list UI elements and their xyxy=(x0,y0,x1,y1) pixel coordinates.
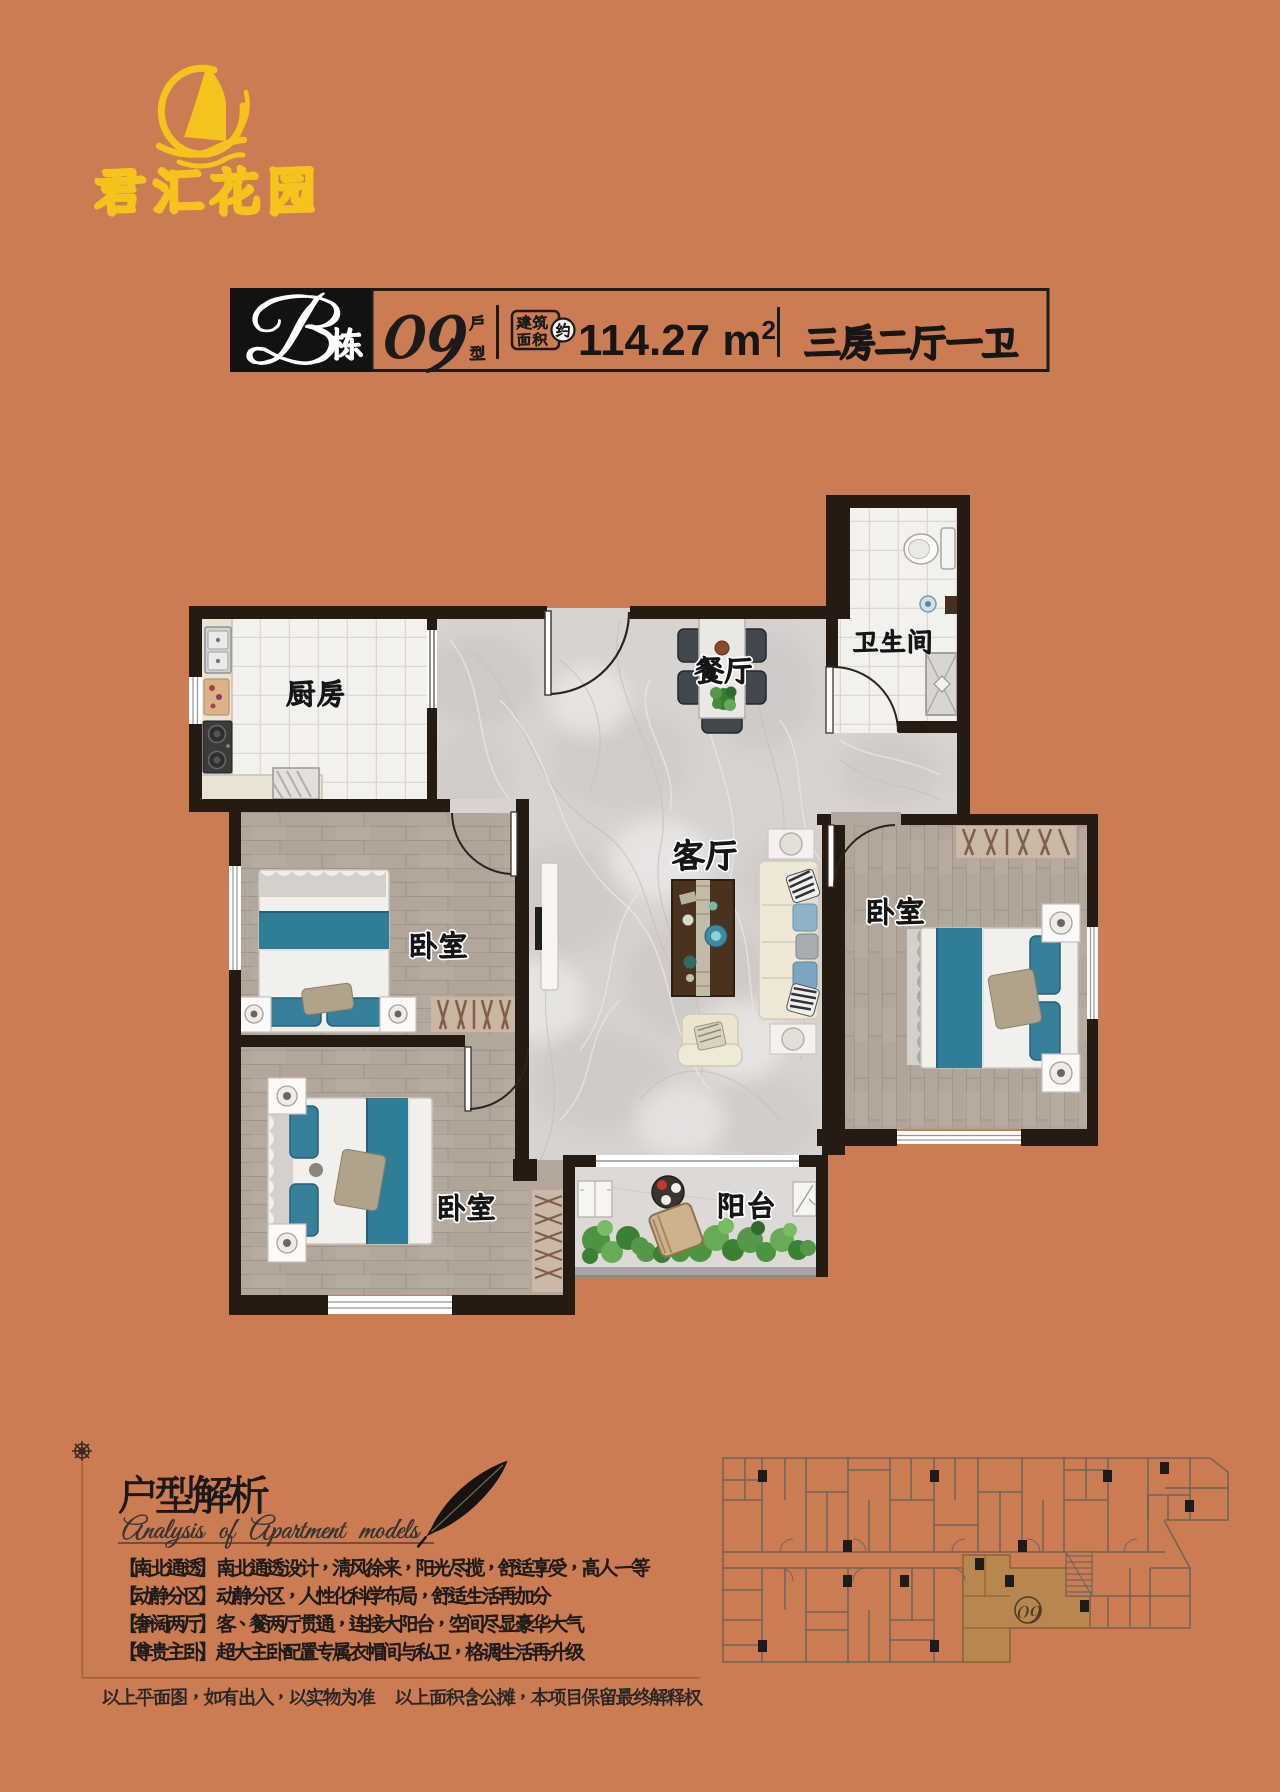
svg-text:114.27 m2: 114.27 m2 xyxy=(578,315,776,365)
